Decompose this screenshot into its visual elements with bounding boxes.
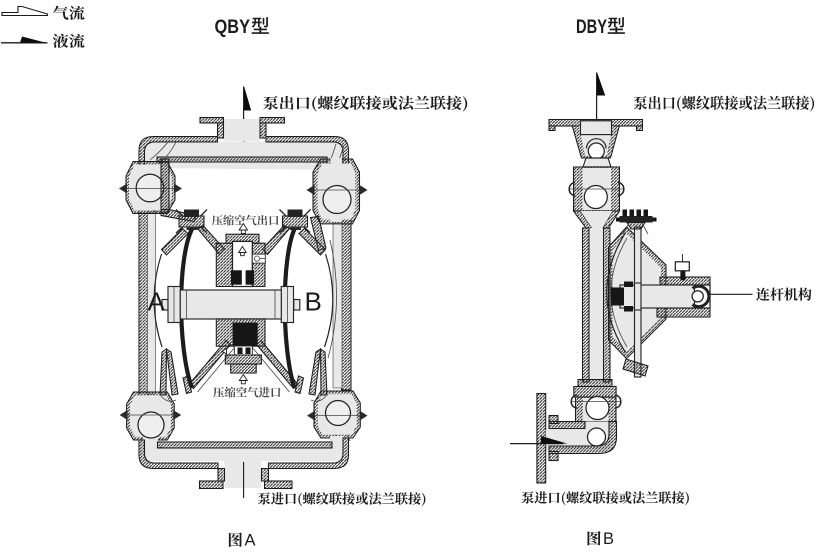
svg-text:B: B <box>603 530 614 548</box>
svg-text:A: A <box>148 287 166 317</box>
svg-text:B: B <box>305 287 322 317</box>
svg-text:QBY: QBY <box>215 16 251 38</box>
svg-text:A: A <box>245 532 256 550</box>
svg-text:DBY: DBY <box>576 16 607 38</box>
